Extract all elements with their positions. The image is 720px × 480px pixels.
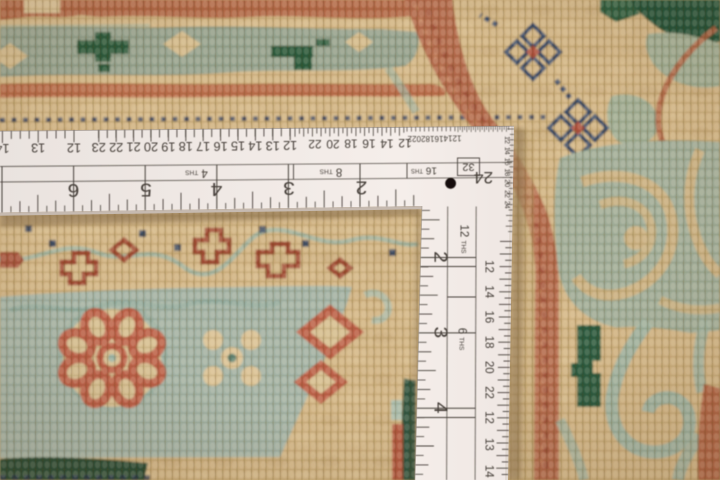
svg-text:32: 32 xyxy=(462,161,474,173)
svg-text:20: 20 xyxy=(503,179,510,187)
svg-text:16: 16 xyxy=(434,134,443,143)
svg-text:12: 12 xyxy=(452,134,461,143)
svg-text:20: 20 xyxy=(416,134,425,143)
svg-text:14: 14 xyxy=(483,285,495,298)
svg-text:4: 4 xyxy=(211,178,223,198)
svg-text:22: 22 xyxy=(503,190,510,198)
svg-text:18: 18 xyxy=(425,134,434,143)
svg-text:14: 14 xyxy=(443,134,452,143)
svg-text:16: 16 xyxy=(362,137,376,151)
svg-text:18: 18 xyxy=(344,137,358,151)
svg-text:18: 18 xyxy=(483,336,495,349)
svg-text:14: 14 xyxy=(483,465,495,478)
svg-text:18: 18 xyxy=(503,169,510,177)
svg-text:14: 14 xyxy=(0,141,10,156)
svg-text:21: 21 xyxy=(126,140,140,155)
svg-text:23: 23 xyxy=(92,140,106,155)
svg-text:5: 5 xyxy=(140,179,152,199)
svg-text:24: 24 xyxy=(474,168,493,187)
svg-text:24: 24 xyxy=(503,201,510,209)
svg-text:12: 12 xyxy=(283,138,297,153)
svg-text:20: 20 xyxy=(144,140,158,155)
svg-text:20: 20 xyxy=(326,137,340,151)
svg-text:6: 6 xyxy=(68,179,80,199)
svg-text:17: 17 xyxy=(196,139,210,154)
svg-text:12: 12 xyxy=(483,411,495,424)
svg-text:22: 22 xyxy=(109,140,123,155)
svg-text:20: 20 xyxy=(483,361,495,374)
svg-text:12: 12 xyxy=(483,260,495,273)
svg-text:2: 2 xyxy=(356,177,368,197)
svg-text:13: 13 xyxy=(483,438,495,451)
svg-text:14: 14 xyxy=(380,136,394,150)
svg-text:19: 19 xyxy=(161,139,175,154)
svg-text:16: 16 xyxy=(483,311,495,324)
svg-text:12: 12 xyxy=(67,140,81,155)
svg-text:3: 3 xyxy=(283,178,295,198)
svg-text:18: 18 xyxy=(179,139,193,154)
svg-text:16: 16 xyxy=(213,139,227,154)
svg-text:13: 13 xyxy=(266,138,280,153)
svg-text:14: 14 xyxy=(503,147,510,155)
svg-text:12: 12 xyxy=(503,136,510,144)
svg-text:22: 22 xyxy=(407,134,416,143)
svg-text:15: 15 xyxy=(231,139,245,154)
svg-text:14: 14 xyxy=(248,139,262,154)
svg-text:13: 13 xyxy=(31,141,45,156)
svg-text:16: 16 xyxy=(503,158,510,166)
svg-text:22: 22 xyxy=(308,137,322,151)
svg-text:22: 22 xyxy=(483,386,495,399)
